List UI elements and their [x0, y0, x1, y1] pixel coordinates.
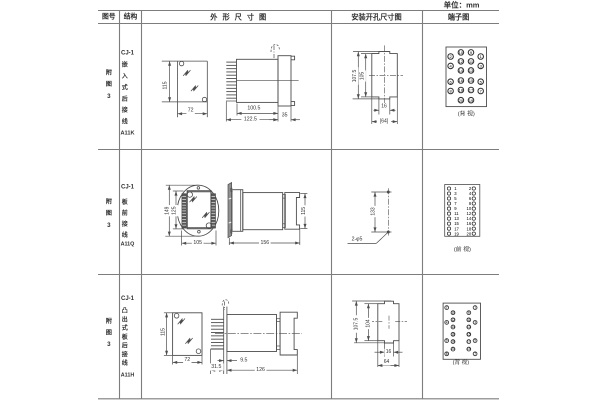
svg-text:板: 板 [122, 198, 129, 206]
svg-text:CJ-1: CJ-1 [121, 296, 135, 302]
svg-text:附: 附 [106, 317, 113, 325]
svg-text:9.5: 9.5 [240, 358, 247, 364]
svg-text:式: 式 [122, 83, 128, 91]
svg-text:18: 18 [459, 88, 464, 93]
svg-text:板: 板 [122, 333, 129, 341]
svg-text:31.5: 31.5 [211, 364, 221, 370]
svg-text:107.5: 107.5 [353, 318, 359, 331]
svg-text:图: 图 [106, 209, 112, 217]
svg-text:11: 11 [467, 318, 471, 322]
svg-text:7: 7 [474, 352, 476, 356]
svg-text:结构: 结构 [124, 12, 138, 21]
svg-text:105: 105 [359, 72, 365, 81]
svg-text:(背 视): (背 视) [458, 109, 475, 117]
svg-text:16: 16 [381, 104, 387, 110]
svg-text:嵌: 嵌 [122, 61, 128, 69]
svg-text:20: 20 [467, 231, 472, 236]
svg-text:图号: 图号 [102, 12, 116, 21]
svg-text:[64]: [64] [380, 119, 389, 125]
svg-text:14: 14 [451, 325, 455, 329]
svg-text:CJ-1: CJ-1 [121, 185, 135, 191]
svg-text:线: 线 [122, 359, 128, 367]
svg-text:107.5: 107.5 [352, 70, 358, 83]
svg-text:3: 3 [107, 93, 111, 100]
svg-text:149: 149 [165, 206, 171, 215]
svg-text:接: 接 [121, 350, 128, 358]
svg-text:外 形 尺 寸 图: 外 形 尺 寸 图 [209, 13, 267, 22]
svg-text:凸: 凸 [122, 307, 128, 315]
svg-text:105: 105 [193, 240, 202, 246]
svg-text:100.5: 100.5 [247, 106, 260, 112]
svg-text:19: 19 [467, 347, 471, 351]
svg-text:17: 17 [467, 340, 471, 344]
svg-text:19: 19 [454, 231, 459, 236]
svg-text:64: 64 [384, 359, 390, 365]
svg-text:35: 35 [282, 112, 288, 118]
svg-text:126: 126 [256, 367, 265, 373]
svg-text:12: 12 [451, 318, 455, 322]
svg-text:线: 线 [122, 231, 128, 239]
svg-text:(前 视): (前 视) [454, 245, 471, 253]
svg-text:后: 后 [122, 342, 128, 350]
svg-text:(背 视): (背 视) [453, 358, 470, 366]
svg-text:20: 20 [451, 347, 455, 351]
svg-text:15: 15 [469, 78, 474, 83]
svg-text:13: 13 [467, 325, 471, 329]
svg-text:4: 4 [446, 321, 448, 325]
svg-text:图: 图 [106, 328, 112, 336]
svg-text:5: 5 [474, 339, 476, 343]
svg-text:16: 16 [451, 332, 455, 336]
svg-text:133: 133 [371, 207, 377, 216]
svg-text:10: 10 [451, 311, 455, 315]
svg-text:18: 18 [451, 340, 455, 344]
svg-text:17: 17 [469, 88, 474, 93]
svg-text:19: 19 [469, 98, 474, 103]
svg-text:A11K: A11K [121, 131, 135, 137]
svg-text:出: 出 [122, 315, 128, 323]
svg-text:14: 14 [459, 68, 464, 73]
svg-text:104: 104 [366, 319, 372, 328]
svg-text:9: 9 [468, 311, 470, 315]
svg-text:1: 1 [474, 306, 476, 310]
svg-text:122.5: 122.5 [244, 117, 257, 123]
svg-text:A11Q: A11Q [121, 242, 135, 248]
svg-text:接: 接 [121, 220, 128, 228]
svg-text:115: 115 [163, 81, 169, 89]
svg-text:附: 附 [106, 69, 113, 77]
svg-text:3: 3 [107, 222, 111, 229]
svg-text:2: 2 [446, 306, 448, 310]
svg-text:6: 6 [446, 339, 448, 343]
svg-text:156: 156 [260, 240, 269, 246]
svg-text:附: 附 [106, 198, 113, 206]
svg-text:接: 接 [121, 106, 128, 114]
svg-text:115: 115 [161, 328, 167, 336]
svg-text:15: 15 [467, 332, 471, 336]
svg-text:图: 图 [106, 80, 112, 88]
svg-text:安装开孔尺寸图: 安装开孔尺寸图 [351, 13, 401, 22]
svg-text:115: 115 [301, 207, 307, 215]
svg-text:CJ-1: CJ-1 [121, 50, 135, 56]
svg-text:3: 3 [107, 341, 111, 348]
svg-text:8: 8 [446, 352, 448, 356]
svg-text:3: 3 [474, 321, 476, 325]
svg-text:72: 72 [184, 357, 190, 363]
svg-text:单位：mm: 单位：mm [444, 0, 480, 9]
svg-text:线: 线 [122, 118, 128, 126]
svg-text:13: 13 [469, 68, 474, 73]
svg-text:12: 12 [459, 59, 464, 64]
svg-text:前: 前 [122, 209, 128, 217]
svg-text:端子图: 端子图 [448, 13, 470, 22]
svg-text:20: 20 [459, 98, 464, 103]
svg-text:125: 125 [172, 206, 178, 215]
svg-text:16: 16 [386, 349, 392, 355]
svg-text:入: 入 [121, 73, 128, 80]
svg-text:后: 后 [122, 95, 128, 103]
svg-text:72: 72 [188, 107, 194, 113]
svg-text:式: 式 [122, 324, 128, 332]
svg-text:A11H: A11H [121, 373, 135, 379]
svg-text:2-φ5: 2-φ5 [352, 237, 363, 243]
svg-text:16: 16 [459, 78, 464, 83]
svg-text:10: 10 [459, 50, 464, 55]
